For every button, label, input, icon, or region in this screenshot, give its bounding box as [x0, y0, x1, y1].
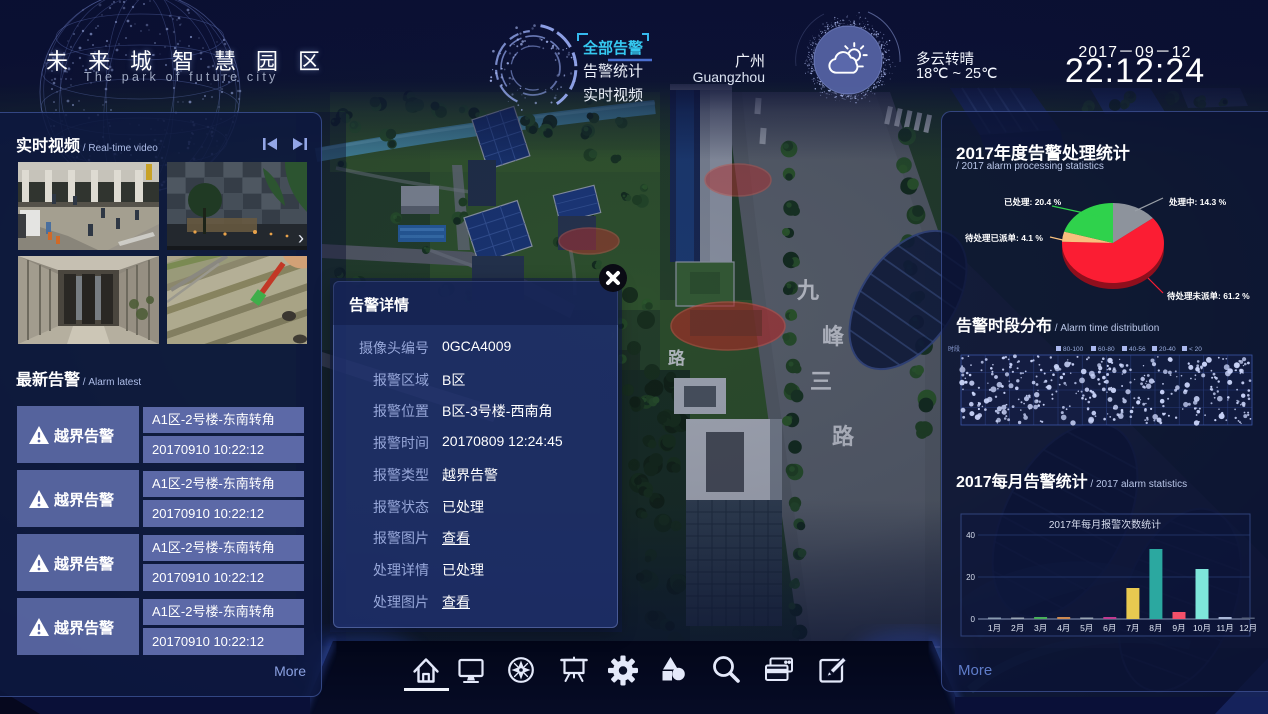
- svg-text:40-56: 40-56: [1129, 346, 1146, 353]
- svg-text:6月: 6月: [1103, 623, 1116, 633]
- svg-text:2017年每月报警次数统计: 2017年每月报警次数统计: [1049, 518, 1161, 531]
- svg-text:3月: 3月: [1034, 623, 1047, 633]
- svg-text:时段: 时段: [948, 345, 960, 353]
- svg-text:11月: 11月: [1216, 623, 1233, 633]
- svg-text:1月: 1月: [988, 623, 1001, 633]
- svg-text:40: 40: [966, 531, 975, 540]
- svg-text:7月: 7月: [1126, 623, 1139, 633]
- svg-text:0: 0: [971, 615, 976, 624]
- svg-text:80-100: 80-100: [1063, 346, 1084, 353]
- svg-text:60-80: 60-80: [1098, 346, 1115, 353]
- svg-text:8月: 8月: [1149, 623, 1162, 633]
- svg-text:2月: 2月: [1011, 623, 1024, 633]
- svg-text:5月: 5月: [1080, 623, 1093, 633]
- svg-text:< 20: < 20: [1189, 346, 1202, 353]
- svg-text:9月: 9月: [1172, 623, 1185, 633]
- svg-text:10月: 10月: [1193, 623, 1211, 633]
- svg-text:4月: 4月: [1057, 623, 1070, 633]
- svg-text:20: 20: [966, 573, 975, 582]
- svg-text:12月: 12月: [1239, 623, 1257, 633]
- svg-text:20-40: 20-40: [1159, 346, 1176, 353]
